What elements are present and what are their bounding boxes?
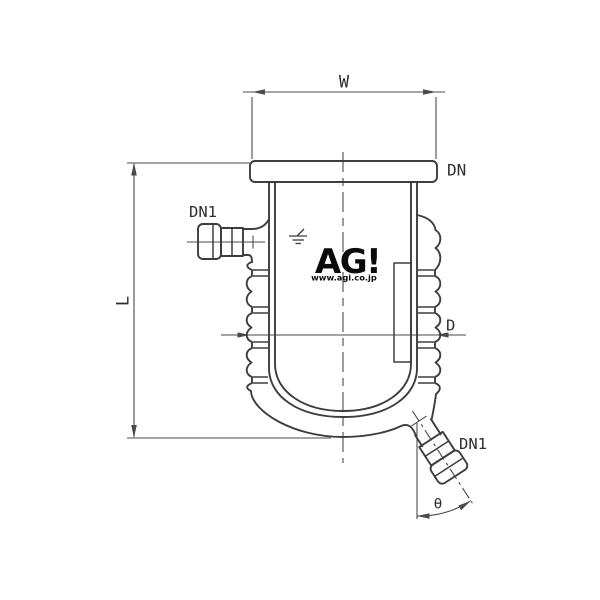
w-arrow-left: [252, 89, 265, 95]
w-dimension: W: [243, 73, 445, 160]
w-dim-label: W: [339, 73, 350, 93]
theta-arrow-right: [458, 501, 471, 511]
liquid-level-icon: [289, 229, 307, 244]
drain-port-cross-tick: [411, 416, 426, 426]
l-dimension: L: [114, 163, 332, 439]
side-port-label: DN1: [189, 203, 217, 221]
inner-vessel-inner-wall: [275, 182, 411, 411]
jacket-right-wall: [417, 215, 440, 420]
agi-logo-url: www.agi.co.jp: [311, 273, 377, 283]
bottom-port-label: DN1: [459, 435, 487, 453]
side-port-neck-bottom: [243, 255, 252, 262]
bottom-drain-port: [398, 402, 486, 513]
agi-logo: AG! www.agi.co.jp: [311, 242, 380, 283]
jacketed-reactor-drawing-page: W L D θ: [0, 0, 600, 600]
theta-arrow-left: [417, 513, 430, 518]
side-port: [198, 220, 269, 262]
l-arrow-bottom: [131, 425, 137, 438]
d-arrow-left: [238, 332, 251, 337]
l-arrow-top: [131, 163, 137, 176]
drain-neck-right: [431, 419, 441, 434]
baffle-plate: [394, 263, 411, 362]
jacketed-reactor-drawing: W L D θ: [0, 0, 600, 600]
side-port-neck-top: [243, 220, 269, 229]
d-dim-label: D: [446, 317, 455, 335]
l-dim-label: L: [114, 296, 134, 306]
w-arrow-right: [423, 89, 436, 95]
drain-barb-line: [425, 441, 448, 456]
theta-label: θ: [434, 497, 443, 513]
flange-size-label: DN: [447, 161, 466, 180]
